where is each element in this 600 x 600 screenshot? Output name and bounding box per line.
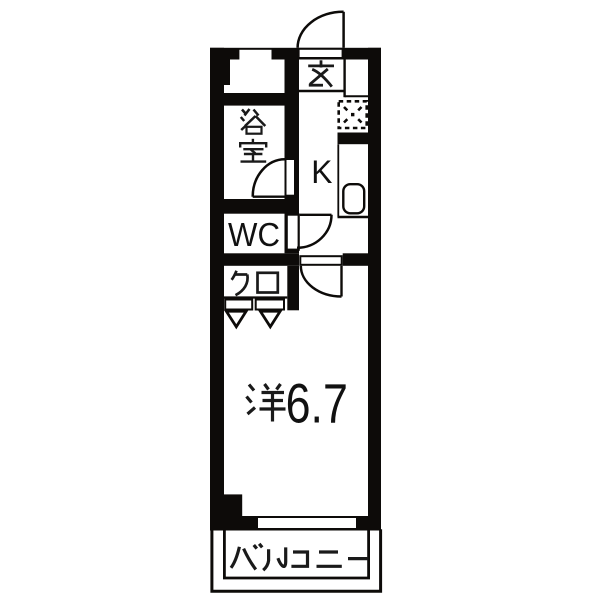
svg-text:WC: WC — [228, 216, 280, 253]
svg-text:K: K — [311, 153, 333, 190]
svg-text:6.7: 6.7 — [286, 372, 348, 435]
